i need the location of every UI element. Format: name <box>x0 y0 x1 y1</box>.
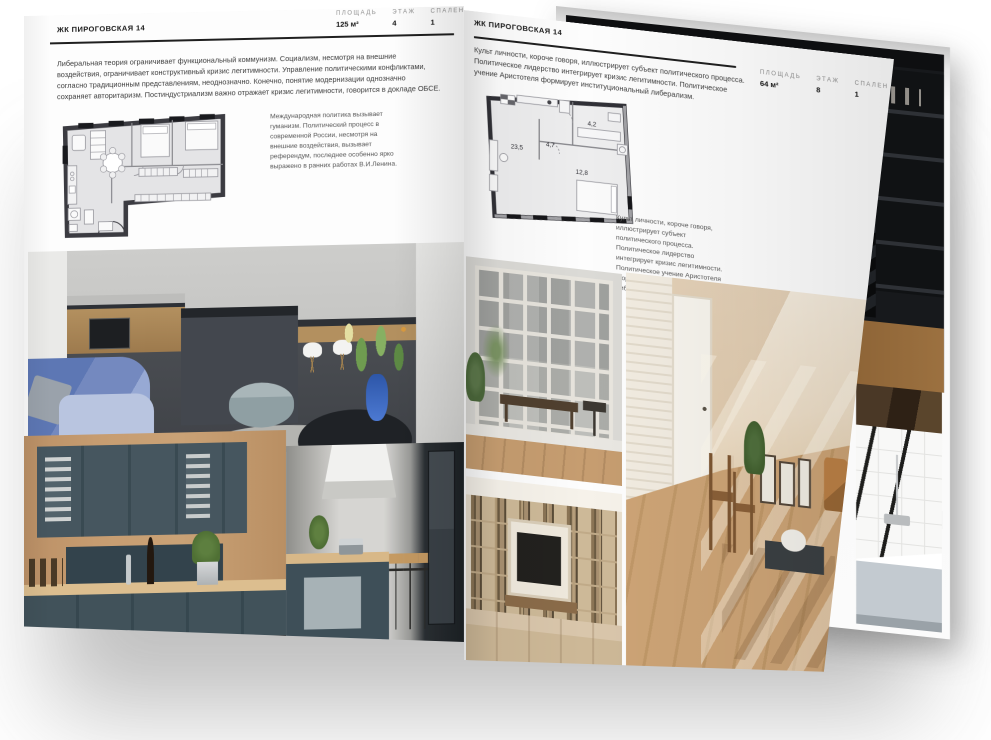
stat-value: 1 <box>431 17 465 27</box>
shower-hose-shape <box>896 455 898 518</box>
wooden-chair-shape <box>709 452 733 552</box>
window-view-photo <box>466 256 622 486</box>
bathroom-photo <box>856 384 942 633</box>
stat-floor: ЭТАЖ 4 <box>392 9 415 28</box>
header-rule <box>50 33 454 44</box>
flowers-shape <box>338 317 416 385</box>
stat-label: СПАЛЕН <box>855 81 889 91</box>
barstool-shape <box>389 553 403 629</box>
white-column-shape <box>416 242 464 449</box>
oven-shape <box>89 318 130 350</box>
stat-bedrooms: СПАЛЕН 1 <box>855 81 889 103</box>
barstool-shape <box>403 553 417 629</box>
stat-area: ПЛОЩАДЬ 64 м² <box>760 70 801 93</box>
stat-value: 4 <box>392 18 415 28</box>
chair-legs-shape <box>303 356 322 372</box>
tv-screen-shape <box>517 532 561 587</box>
stat-value: 125 м² <box>336 19 377 29</box>
wooden-chair-shape <box>733 471 754 555</box>
plant-bucket-shape <box>197 561 218 585</box>
jars-shape <box>29 558 63 587</box>
kitchen-living-photo <box>28 242 464 458</box>
room-label-bathroom: 4,2 <box>588 121 597 129</box>
dish-cabinet-shape <box>186 453 210 518</box>
magazine-spread-mockup: ЖК ПИРОГОВСКАЯ 14 Культ личности, короче… <box>0 0 991 740</box>
plant-shape <box>309 515 329 549</box>
page-title: ЖК ПИРОГОВСКАЯ 14 <box>57 23 145 34</box>
picture-frame-shape <box>779 460 795 506</box>
stat-label: ПЛОЩАДЬ <box>336 10 377 17</box>
greenery-shape <box>482 322 510 380</box>
left-page: ЖК ПИРОГОВСКАЯ 14 ПЛОЩАДЬ 125 м² ЭТАЖ 4 … <box>24 6 464 652</box>
room-label-hall: 4,7 <box>546 141 555 149</box>
lower-cabinets-shape <box>24 590 286 652</box>
picture-frame-shape <box>798 458 811 508</box>
fridge-shape <box>428 450 455 625</box>
wine-bottle-shape <box>147 537 154 585</box>
apartment-stats: ПЛОЩАДЬ 64 м² ЭТАЖ 8 СПАЛЕН 1 <box>760 70 889 103</box>
right-page: ЖК ПИРОГОВСКАЯ 14 Культ личности, короче… <box>464 10 894 709</box>
toe-kick-shape <box>24 635 286 652</box>
pot-shape <box>339 538 362 555</box>
stat-label: СПАЛЕН <box>431 8 465 15</box>
range-hood-shape <box>322 444 397 500</box>
stat-value: 1 <box>855 90 889 103</box>
faucet-shape <box>126 555 131 585</box>
page-title: ЖК ПИРОГОВСКАЯ 14 <box>474 18 562 37</box>
stat-area: ПЛОЩАДЬ 125 м² <box>336 10 377 29</box>
room-label-bedroom: 12,8 <box>576 169 589 177</box>
stat-value: 8 <box>816 85 839 97</box>
island-barstools-photo <box>286 442 464 646</box>
stat-value: 64 м² <box>760 79 801 93</box>
room-label-living: 23,5 <box>511 143 524 151</box>
apartment-stats: ПЛОЩАДЬ 125 м² ЭТАЖ 4 СПАЛЕН 1 <box>336 8 465 29</box>
stat-floor: ЭТАЖ 8 <box>816 76 839 97</box>
white-chair-shape <box>303 342 322 357</box>
stat-label: ЭТАЖ <box>816 76 839 85</box>
intro-paragraph: Либеральная теория ограничивает функцион… <box>57 51 441 103</box>
plant-shape <box>192 531 221 564</box>
side-table-shape <box>583 401 606 438</box>
floor-plan-125m2 <box>54 103 234 249</box>
stat-label: ЭТАЖ <box>392 9 415 16</box>
island-panel-shape <box>304 576 361 629</box>
shelving-living-room-photo <box>466 476 622 678</box>
plan-caption: Международная политика вызывает гуманизм… <box>270 109 406 172</box>
dish-cabinet-shape <box>45 457 71 522</box>
teal-kitchen-photo <box>24 430 286 652</box>
plant-shape <box>466 352 485 403</box>
stat-bedrooms: СПАЛЕН 1 <box>431 8 465 27</box>
